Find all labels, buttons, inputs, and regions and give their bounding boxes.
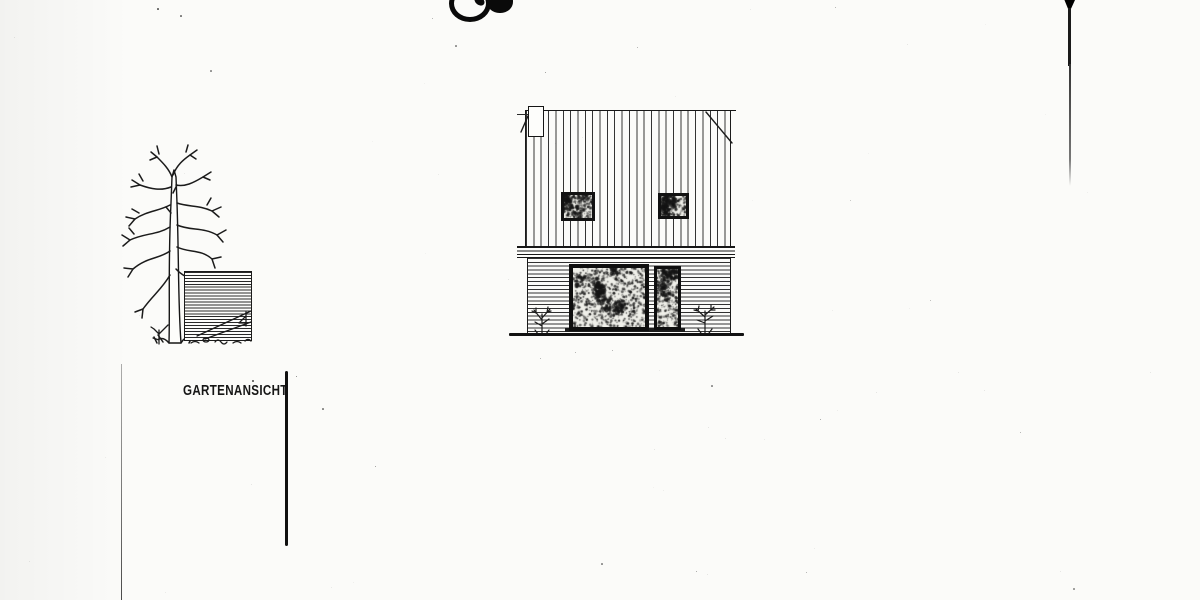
glass-mottle-texture (661, 196, 686, 216)
section-reference-line (285, 371, 288, 546)
ink-speck (637, 47, 638, 48)
ink-speck (375, 466, 376, 467)
drawing-caption: GARTENANSICHT (183, 383, 288, 399)
paper-grain-dot (876, 392, 877, 393)
paper-grain-dot (508, 279, 509, 280)
paper-grain-dot (675, 96, 676, 97)
paper-grain-dot (750, 9, 751, 10)
paper-grain-dot (837, 410, 838, 411)
ink-speck (711, 385, 713, 387)
paper-grain-dot (708, 427, 709, 428)
paper-grain-dot (1150, 372, 1151, 373)
paper-grain-dot (659, 370, 660, 371)
paper-grain-dot (251, 484, 252, 485)
ink-speck (601, 563, 603, 565)
glass-mottle-texture (573, 268, 645, 327)
paper-grain-dot (707, 574, 708, 575)
scan-ink-blob (487, 0, 513, 13)
ink-speck (180, 15, 182, 17)
house-elevation-drawing (505, 100, 750, 345)
paper-grain-dot (985, 24, 986, 25)
ink-speck (540, 358, 541, 359)
paper-grain-dot (438, 174, 439, 175)
shrub-left (529, 300, 555, 334)
paper-grain-dot (909, 308, 910, 309)
picture-window (569, 264, 649, 331)
scan-line-right-mid (1068, 8, 1071, 66)
scan-arc-mark (449, 0, 491, 22)
upper-window-left (561, 192, 595, 221)
paper-grain-dot (29, 561, 30, 562)
scan-line-right-tail (1069, 64, 1071, 186)
paper-grain-dot (752, 200, 753, 201)
chimney-stack (528, 106, 544, 137)
paper-grain-dot (663, 490, 664, 491)
paper-grain-dot (1060, 571, 1061, 572)
paper-grain-dot (14, 37, 15, 38)
upper-window-right (658, 193, 689, 219)
paper-grain-dot (139, 315, 140, 316)
scanned-drawing-page: GARTENANSICHT (0, 0, 1200, 600)
paper-grain-dot (424, 83, 425, 84)
ink-speck (696, 571, 697, 572)
ink-speck (820, 419, 821, 420)
paper-grain-dot (654, 449, 655, 450)
paper-grain-dot (614, 195, 615, 196)
paper-grain-dot (1087, 192, 1088, 193)
ink-speck (432, 18, 433, 19)
eave-band (517, 246, 735, 258)
ink-speck (296, 376, 297, 377)
ink-speck (455, 45, 457, 47)
ground-line (509, 333, 744, 336)
paper-grain-dot (958, 372, 959, 373)
paper-grain-dot (105, 457, 106, 458)
ink-speck (157, 8, 159, 10)
ink-speck (545, 72, 546, 73)
paper-grain-dot (331, 587, 332, 588)
ink-speck (612, 350, 613, 351)
ink-speck (252, 380, 254, 382)
glass-mottle-texture (657, 269, 678, 327)
paper-fold-line (121, 364, 122, 600)
paper-grain-dot (372, 141, 373, 142)
paper-grain-dot (725, 438, 726, 439)
paper-grain-dot (653, 487, 654, 488)
shrub-right (692, 298, 718, 334)
ink-speck (806, 572, 807, 573)
paper-grain-dot (907, 44, 908, 45)
glass-mottle-texture (564, 195, 592, 218)
paper-grain-dot (425, 253, 426, 254)
paper-grain-dot (764, 439, 765, 440)
ink-speck (322, 408, 324, 410)
paper-grain-dot (832, 310, 833, 311)
ink-speck (1073, 588, 1075, 590)
ink-speck (930, 300, 931, 301)
paper-grain-dot (814, 548, 815, 549)
ink-speck (210, 70, 212, 72)
glazed-door (654, 266, 681, 330)
ink-speck (850, 200, 851, 201)
paper-grain-dot (582, 137, 583, 138)
ground-detail-left (145, 300, 260, 348)
paper-grain-dot (984, 390, 985, 391)
paper-grain-dot (1045, 114, 1046, 115)
paper-grain-dot (184, 173, 185, 174)
paper-grain-dot (868, 153, 869, 154)
paper-grain-dot (165, 592, 166, 593)
ink-speck (835, 7, 836, 8)
ink-speck (1020, 432, 1021, 433)
ink-speck (575, 352, 576, 353)
paper-grain-dot (555, 143, 556, 144)
paper-grain-dot (353, 582, 354, 583)
